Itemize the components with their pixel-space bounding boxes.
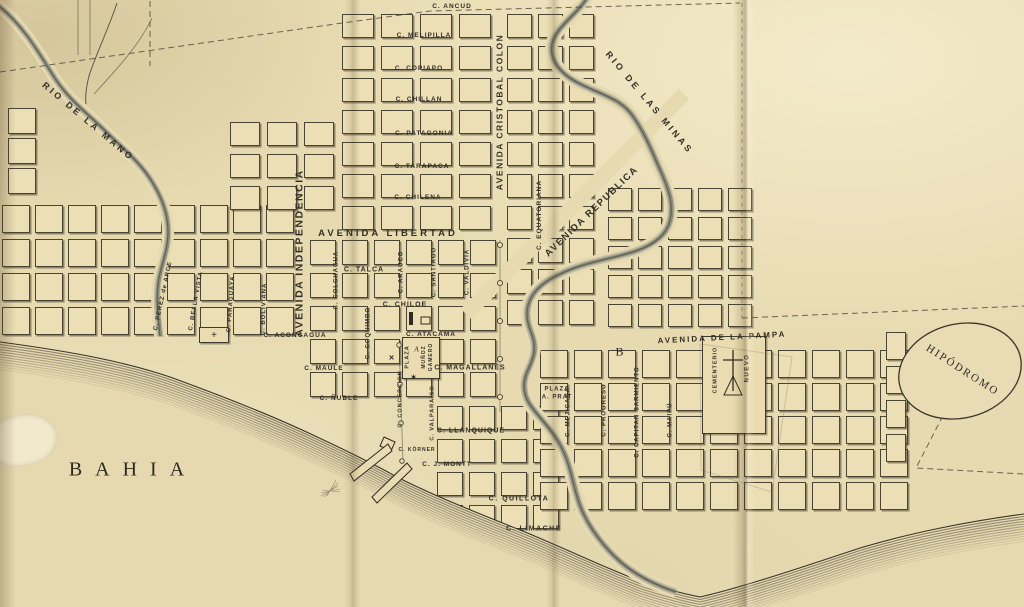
bay-label-bahia: BAHIA [69,458,197,483]
sector-b-marker: B [615,345,624,360]
hipodromo-label: HIPÓDROMO [923,342,1001,400]
street-label-santiago: C. SANTIAGO [431,247,439,297]
street-label-korner: C. KÖRNER [398,447,435,453]
street-label-limache: C. LIMACHE [506,526,562,535]
street-label-boliviana: C. BOLIVIANA [260,283,269,336]
street-label-chiloe: C. CHILOE [383,302,427,311]
street-label-chilena: C. CHILENA [394,194,441,202]
street-label-maipu: C. MAIPÚ [667,403,675,438]
street-label-mejicana: C. MEJICANA [565,387,573,437]
street-label-nuble: C. ÑUBLE [320,395,359,403]
avenue-label-republica: AVENIDA REPUBLICA [543,164,641,260]
street-label-capitan-sarmiento: C. CAPITAN SARMIENTO [634,366,642,457]
avenue-label-pampa: AVENIDA DE LA PAMPA [657,330,786,347]
avenue-label-libertad: AVENIDA LIBERTAD [318,228,458,240]
street-label-aconcagua: C. ACONCAGUA [263,332,326,340]
street-label-colchagua: C. COLCHAGUA [333,251,341,310]
cemetery-nuevo-label: NUEVO [744,354,752,383]
street-label-arauco: C. ARAUCO [398,251,406,294]
street-label-valparaiso: C. VALPARAISO [430,385,437,440]
street-label-quillota: C. QUILLOTA [489,496,550,505]
street-label-j-montt: C. J. MONTT [422,461,472,469]
plaza-a-label: A [414,346,419,355]
street-label-ancud: C. ANCUD [432,3,472,11]
plaza-star-icon: ✶ [411,375,418,384]
street-label-maule: C. MAULE [304,365,343,373]
street-label-talca: C. TALCA [344,267,384,276]
street-label-magallanes: C. MAGALLANES [434,365,505,374]
street-label-progreso: C. PROGRESO [601,383,609,436]
street-label-valdivia: C. VALDIVIA [464,249,472,295]
street-label-patagonia: C. PATAGONIA [395,130,453,138]
historic-city-map: + [0,0,1024,607]
street-label-melipilla: C. MELIPILLA [397,32,452,40]
plaza-munoz-label: MUÑOZ [421,345,427,368]
street-label-chillan: C. CHILLAN [396,96,443,104]
map-labels: RIO DE LA MANO RIO DE LAS MINAS C. ANCUD… [0,0,1024,607]
avenue-label-cristobal-colon: AVENIDA CRISTOBAL COLON [495,34,506,191]
river-label-rio-de-la-mano: RIO DE LA MANO [40,80,137,164]
street-label-copiapo: C. COPIAPO [395,65,443,73]
street-label-llanquique: C. LLANQUIQUE [437,428,505,437]
river-label-rio-de-las-minas: RIO DE LAS MINAS [603,49,696,157]
plaza-label: PLAZA [405,345,412,368]
street-label-concepcion: C. CONCEPCION [398,370,405,427]
street-label-bella-vista: C. BELLA VISTA [188,271,206,332]
street-label-coquimbo: C. COQUIMBO [365,307,373,359]
cemetery-label: CEMENTERIO [713,347,720,394]
avenue-label-independencia: AVENIDA INDEPENDENCIA [293,169,306,336]
street-label-tarapaca: C. TARAPACA [395,163,450,171]
street-label-atacama: C. ATACAMA [406,331,456,339]
street-label-equatoriana: C. EQUATORIANA [536,180,544,250]
plaza-gamero-label: GAMERO [428,343,434,372]
x-mark-icon: × [389,352,395,363]
street-label-paraguaya: C. PARAGUAYA [226,275,237,332]
street-label-perez-de-arce: C. PEREZ de ARCE [153,261,175,332]
